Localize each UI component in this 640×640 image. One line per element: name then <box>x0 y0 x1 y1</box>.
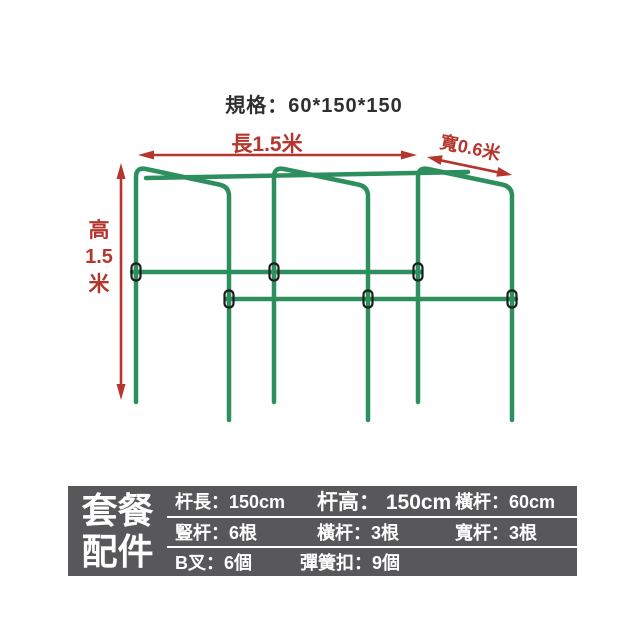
arrowhead-right-icon <box>401 151 417 160</box>
table-cell: B叉：6個 <box>167 549 292 575</box>
table-cell: 橫杆：60cm <box>447 488 555 514</box>
green-frame <box>132 169 516 420</box>
package-table-rows: 杆長：150cm 杆高： 150cm 橫杆：60cm 豎杆：6根 橫杆：3根 寬… <box>167 486 577 576</box>
table-row: 豎杆：6根 橫杆：3根 寬杆：3根 <box>167 518 577 548</box>
package-table-title: 套餐 配件 <box>68 486 167 576</box>
height-label-char: 米 <box>89 273 111 296</box>
hoop-1 <box>136 169 229 420</box>
arrowhead-upleft-icon <box>427 155 443 165</box>
table-cell: 橫杆：3根 <box>309 519 447 545</box>
height-label-char: 1.5 <box>85 246 113 268</box>
dimension-arrowheads <box>117 151 513 401</box>
arrowhead-down-icon <box>117 384 126 400</box>
table-cell: 杆高： 150cm <box>309 486 447 516</box>
hoop-2 <box>274 169 368 420</box>
table-cell: 寬杆：3根 <box>447 519 537 545</box>
table-cell: 彈簧扣：9個 <box>292 549 400 575</box>
width-label: 寬0.6米 <box>437 131 503 165</box>
product-spec-image: 規格：60*150*150 <box>0 0 640 640</box>
arrowhead-left-icon <box>138 151 154 160</box>
table-row: B叉：6個 彈簧扣：9個 <box>167 548 577 576</box>
hoop-3 <box>418 169 512 420</box>
arrowhead-downright-icon <box>496 167 512 177</box>
table-row: 杆長：150cm 杆高： 150cm 橫杆：60cm <box>167 486 577 518</box>
package-table-title-line: 配件 <box>81 531 153 572</box>
arrowhead-up-icon <box>117 163 126 179</box>
package-table: 套餐 配件 杆長：150cm 杆高： 150cm 橫杆：60cm 豎杆：6根 橫… <box>68 486 577 576</box>
table-cell: 杆長：150cm <box>167 488 309 514</box>
package-table-title-line: 套餐 <box>81 490 153 531</box>
height-label: 高 1.5 米 <box>85 218 113 296</box>
table-cell: 豎杆：6根 <box>167 519 309 545</box>
height-label-char: 高 <box>89 218 110 242</box>
length-label: 長1.5米 <box>231 133 303 156</box>
